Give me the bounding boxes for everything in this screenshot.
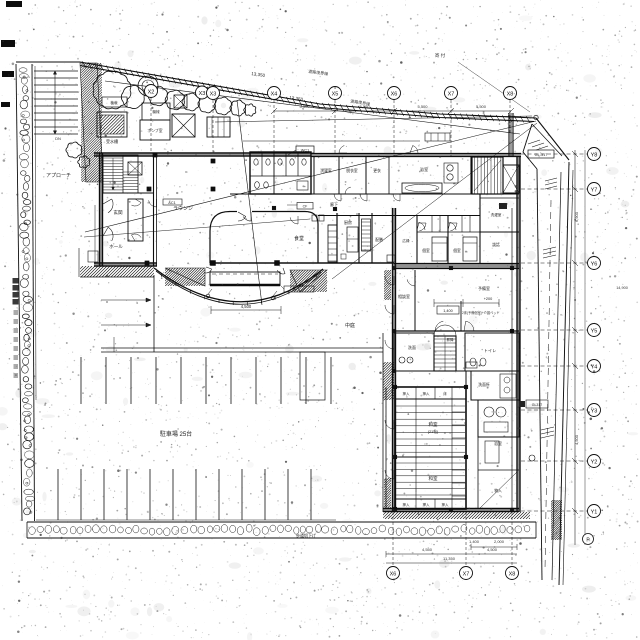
svg-text:X6: X6 xyxy=(391,92,398,98)
svg-text:ポンプ室: ポンプ室 xyxy=(147,128,162,133)
svg-text:洗濯室: 洗濯室 xyxy=(491,212,502,217)
svg-text:押入: 押入 xyxy=(423,502,431,507)
svg-text:駐車場 25台: 駐車場 25台 xyxy=(160,430,192,438)
svg-text:機械: 機械 xyxy=(152,109,160,114)
svg-text:4,550: 4,550 xyxy=(422,547,433,552)
svg-text:物入: 物入 xyxy=(494,488,502,493)
svg-text:トイレ: トイレ xyxy=(484,348,497,353)
svg-text:洗面所: 洗面所 xyxy=(478,382,490,387)
svg-text:植栽: 植栽 xyxy=(110,100,118,105)
svg-text:5,500: 5,500 xyxy=(476,104,487,109)
svg-text:相談室: 相談室 xyxy=(398,293,410,299)
svg-text:X7: X7 xyxy=(463,572,470,578)
svg-text:X3: X3 xyxy=(210,92,217,98)
svg-text:Y2: Y2 xyxy=(591,460,598,466)
svg-text:Y7: Y7 xyxy=(591,188,598,194)
svg-text:5,500: 5,500 xyxy=(359,104,370,109)
svg-text:X7: X7 xyxy=(448,92,455,98)
svg-text:4,500: 4,500 xyxy=(487,547,498,552)
svg-text:1,400: 1,400 xyxy=(443,309,453,313)
svg-text:(21帖): (21帖) xyxy=(428,429,439,434)
svg-text:床: 床 xyxy=(443,391,447,396)
svg-text:2床(予備個室)+介護ベッド: 2床(予備個室)+介護ベッド xyxy=(462,310,500,315)
svg-text:昇降: 昇降 xyxy=(447,337,455,342)
svg-text:X2: X2 xyxy=(148,90,155,96)
svg-text:WC1: WC1 xyxy=(301,149,309,153)
svg-text:個室: 個室 xyxy=(422,248,430,253)
svg-text:X5: X5 xyxy=(332,92,339,98)
svg-text:配膳: 配膳 xyxy=(375,237,383,242)
svg-text:1,400: 1,400 xyxy=(469,539,480,544)
svg-text:廊下: 廊下 xyxy=(330,201,338,207)
svg-text:Y1: Y1 xyxy=(591,510,598,516)
svg-text:4,500: 4,500 xyxy=(241,304,252,309)
svg-text:寄 付: 寄 付 xyxy=(435,52,446,59)
svg-text:4,500: 4,500 xyxy=(574,434,579,445)
svg-text:DN: DN xyxy=(55,136,61,141)
svg-text:和室: 和室 xyxy=(429,475,438,482)
svg-text:14,900: 14,900 xyxy=(616,286,628,290)
svg-text:押入: 押入 xyxy=(403,391,411,396)
svg-text:個室: 個室 xyxy=(453,248,461,253)
svg-text:Y5: Y5 xyxy=(591,329,598,335)
svg-text:2,000: 2,000 xyxy=(494,539,505,544)
svg-text:予備室: 予備室 xyxy=(478,285,490,291)
svg-text:5,500: 5,500 xyxy=(299,104,310,109)
svg-text:Y3: Y3 xyxy=(591,409,598,415)
svg-text:X8: X8 xyxy=(509,572,516,578)
svg-text:押入: 押入 xyxy=(403,502,411,507)
svg-text:押入: 押入 xyxy=(423,391,431,396)
svg-text:脱衣室: 脱衣室 xyxy=(346,168,358,173)
svg-text:+200: +200 xyxy=(484,297,493,301)
svg-text:ホール: ホール xyxy=(109,244,123,249)
svg-text:アプローチ: アプローチ xyxy=(46,173,71,179)
svg-text:押入: 押入 xyxy=(442,502,450,507)
svg-text:玄関: 玄関 xyxy=(113,209,123,216)
svg-text:洗面: 洗面 xyxy=(408,344,416,350)
svg-text:中庭: 中庭 xyxy=(345,322,355,329)
svg-text:GL-317: GL-317 xyxy=(535,153,548,157)
svg-text:浴室: 浴室 xyxy=(420,166,428,173)
svg-text:X8: X8 xyxy=(507,92,514,98)
svg-text:Y6: Y6 xyxy=(591,262,598,268)
svg-text:更衣: 更衣 xyxy=(373,168,381,173)
svg-text:食堂: 食堂 xyxy=(294,235,304,242)
svg-text:X6: X6 xyxy=(390,572,397,578)
svg-text:談話: 談話 xyxy=(492,242,500,247)
svg-text:厨房: 厨房 xyxy=(344,219,352,225)
svg-text:ラウンジ: ラウンジ xyxy=(173,205,193,212)
svg-text:広縁: 広縁 xyxy=(402,238,410,243)
svg-text:洗濯室: 洗濯室 xyxy=(320,168,332,173)
svg-text:CF: CF xyxy=(303,205,308,209)
svg-text:X4: X4 xyxy=(271,92,278,98)
svg-text:和室: 和室 xyxy=(429,421,438,428)
